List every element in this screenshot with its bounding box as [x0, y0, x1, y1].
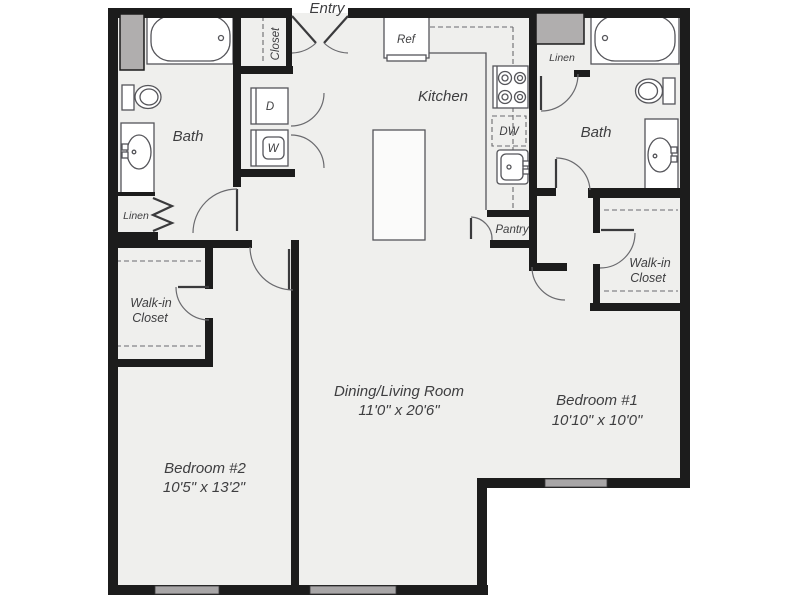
walkin-left-label-line1: Walk-in [130, 296, 171, 310]
toilet-right-tank [663, 78, 675, 104]
bedroom2-name: Bedroom #2 [164, 460, 246, 477]
window-dining [310, 586, 396, 594]
bedroom1-dimensions: 10'10" x 10'0" [552, 412, 643, 429]
floor-plan-canvas: Entry Closet Kitchen Ref DW Pantry D W B… [0, 0, 800, 600]
faucet-right-icon [671, 147, 677, 153]
bedroom1-name: Bedroom #1 [556, 392, 638, 409]
shaft-right [536, 13, 584, 44]
entry-closet-label: Closet [270, 27, 282, 60]
linen-left-label: Linen [123, 210, 149, 222]
floor-plan: Entry Closet Kitchen Ref DW Pantry D W B… [0, 0, 800, 600]
bath-left-label: Bath [173, 128, 204, 145]
walkin-right-label-line1: Walk-in [629, 256, 670, 270]
bedroom2-dimensions: 10'5" x 13'2" [163, 479, 246, 496]
dryer-label: D [266, 101, 274, 113]
walkin-left-label-line2: Closet [132, 311, 168, 325]
refrigerator-base [387, 55, 426, 61]
dining-living-dimensions: 11'0" x 20'6" [358, 402, 440, 419]
washer-label: W [268, 143, 280, 155]
faucet-right-icon2 [671, 156, 677, 162]
walkin-right-label-line2: Closet [630, 271, 666, 285]
faucet-left-icon [122, 144, 128, 150]
window-bedroom1 [545, 479, 607, 487]
faucet-left-icon2 [122, 152, 128, 158]
shaft-left [120, 14, 144, 70]
toilet-left-tank [122, 85, 134, 110]
dishwasher-label: DW [499, 126, 519, 138]
bath-right-label: Bath [581, 124, 612, 141]
kitchen-faucet [523, 161, 529, 166]
pantry-label: Pantry [495, 224, 529, 236]
kitchen-label: Kitchen [418, 88, 468, 105]
entry-label: Entry [309, 0, 346, 17]
linen-right-label: Linen [549, 52, 575, 64]
dining-living-name: Dining/Living Room [334, 383, 464, 400]
refrigerator-label: Ref [397, 34, 417, 46]
window-bedroom2 [155, 586, 219, 594]
kitchen-island [373, 130, 425, 240]
kitchen-faucet2 [523, 169, 529, 174]
